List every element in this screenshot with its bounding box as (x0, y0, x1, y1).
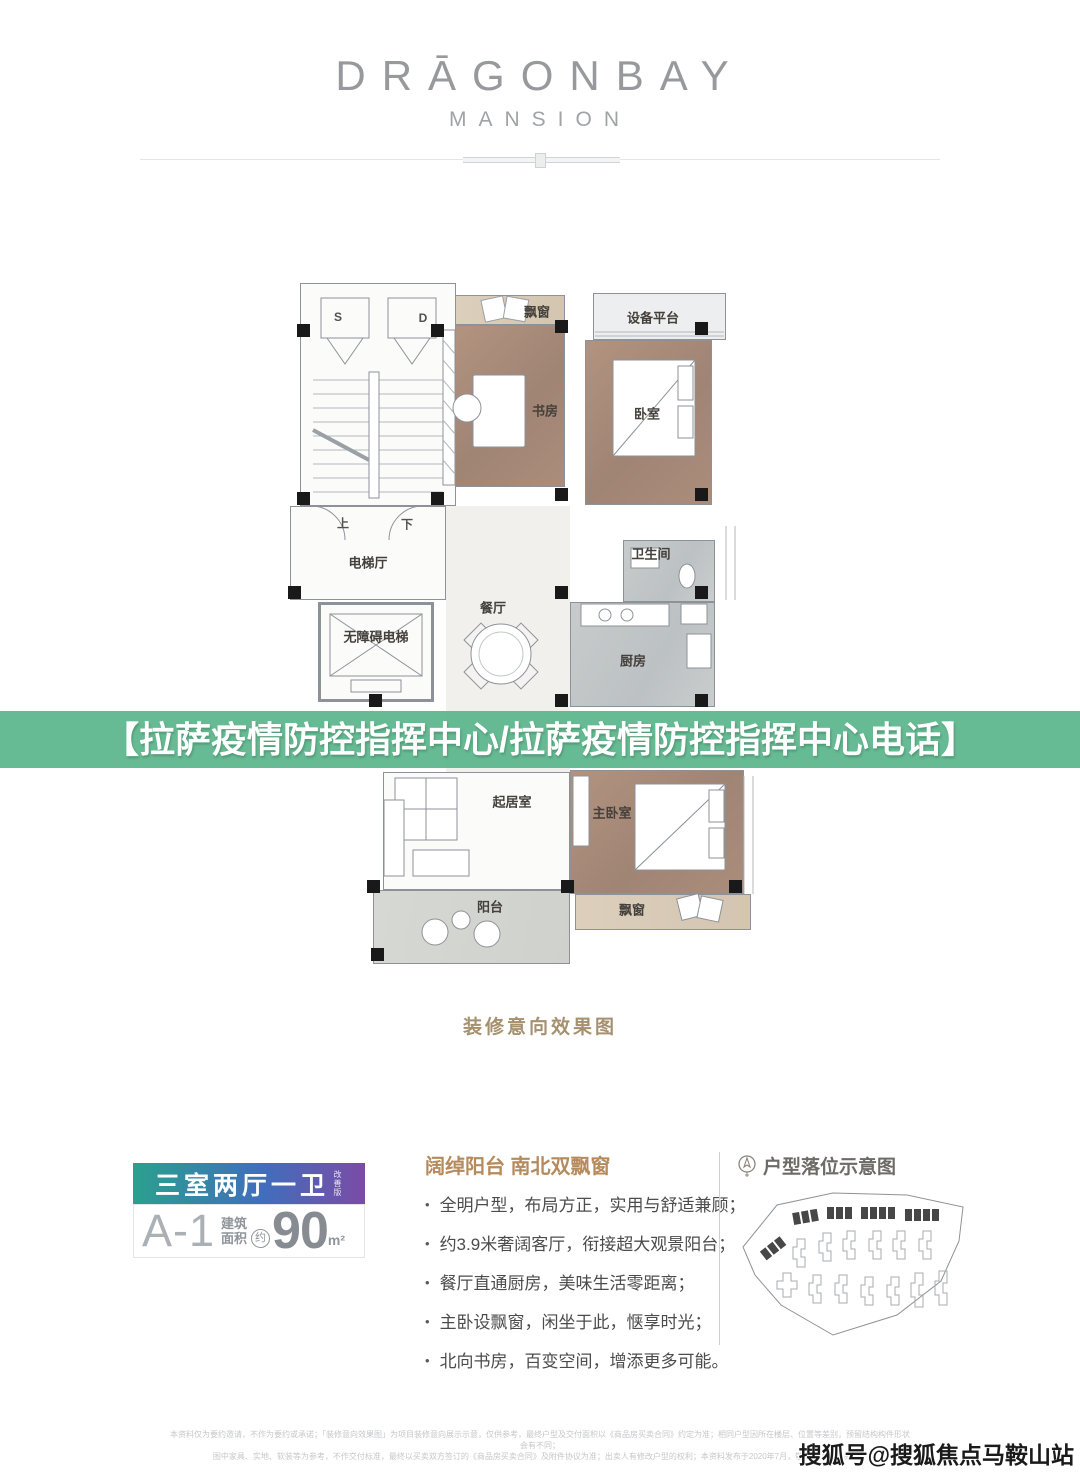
label-master-bedroom: 主卧室 (592, 803, 631, 822)
label-kitchen: 厨房 (620, 651, 646, 670)
brand-logo-primary: DRĀGONBAY (0, 52, 1080, 100)
features-list: 全明户型，布局方正，实用与舒适兼顾； 约3.9米奢阔客厅，衔接超大观景阳台； 餐… (425, 1186, 720, 1381)
column (288, 586, 301, 599)
feature-item: 北向书房，百变空间，增添更多可能。 (425, 1342, 720, 1381)
area-label: 建筑 面积 (221, 1216, 247, 1246)
floor-plan: S D 飘窗 设备平台 书房 卧室 上 下 电梯厅 无障碍电梯 餐厅 卫生间 厨… (283, 280, 775, 986)
column (297, 492, 310, 505)
column (297, 324, 310, 337)
area-unit: m² (328, 1232, 345, 1248)
column (555, 488, 568, 501)
watermark: 搜狐号@搜狐焦点马鞍山站 (799, 1436, 1074, 1470)
area-label-line2: 面积 (221, 1231, 247, 1246)
label-shaft-s: S (334, 310, 342, 324)
column (561, 880, 574, 893)
feature-item: 餐厅直通厨房，美味生活零距离； (425, 1264, 720, 1303)
header-divider-ornament (535, 153, 546, 168)
label-bedroom: 卧室 (634, 404, 660, 423)
column (369, 694, 382, 707)
unit-type-tag: 改善版 (332, 1170, 343, 1197)
label-bay-window-top: 飘窗 (524, 302, 550, 321)
feature-item: 全明户型，布局方正，实用与舒适兼顾； (425, 1186, 720, 1225)
label-study: 书房 (532, 401, 558, 420)
label-balcony: 阳台 (477, 897, 503, 916)
location-map-title-row: 户型落位示意图 (737, 1152, 896, 1179)
column (695, 586, 708, 599)
label-equipment-platform: 设备平台 (627, 308, 679, 327)
label-shaft-d: D (419, 311, 428, 325)
location-map-title: 户型落位示意图 (763, 1152, 896, 1179)
column (431, 492, 444, 505)
approx-circle: 约 (251, 1229, 270, 1248)
label-bathroom: 卫生间 (631, 544, 670, 563)
column (431, 324, 444, 337)
unit-area-panel: A-1 建筑 面积 约 90 m² (133, 1204, 365, 1258)
column (555, 586, 568, 599)
floor-plan-caption: 装修意向效果图 (0, 1012, 1080, 1039)
label-accessible-elevator: 无障碍电梯 (343, 627, 408, 646)
column (367, 880, 380, 893)
features-title: 阔绰阳台 南北双飘窗 (425, 1150, 611, 1179)
column (371, 948, 384, 961)
feature-item: 约3.9米奢阔客厅，衔接超大观景阳台； (425, 1225, 720, 1264)
area-value: 90 (272, 1201, 328, 1261)
column (729, 880, 742, 893)
column (695, 322, 708, 335)
overlay-banner-text: 【拉萨疫情防控指挥中心/拉萨疫情防控指挥中心电话】 (103, 711, 977, 768)
section-divider (719, 1152, 720, 1345)
unit-type-label: 三室两厅一卫 (155, 1166, 329, 1202)
area-label-line1: 建筑 (221, 1216, 247, 1231)
label-stairs-down: 下 (401, 516, 413, 533)
feature-item: 主卧设飘窗，闲坐于此，惬享时光； (425, 1303, 720, 1342)
overlay-banner: 【拉萨疫情防控指挥中心/拉萨疫情防控指挥中心电话】 (0, 711, 1080, 768)
unit-code: A-1 (142, 1205, 215, 1257)
column (555, 320, 568, 333)
label-bay-window-bottom: 飘窗 (619, 900, 645, 919)
label-dining: 餐厅 (480, 598, 506, 617)
brand-logo-secondary: MANSION (0, 108, 1080, 132)
label-elevator-hall: 电梯厅 (348, 553, 387, 572)
label-living: 起居室 (492, 792, 531, 811)
unit-type-bar: 三室两厅一卫 改善版 (133, 1163, 365, 1204)
column (695, 694, 708, 707)
compass-icon (737, 1154, 757, 1178)
column (695, 488, 708, 501)
label-stairs-up: 上 (337, 515, 349, 532)
site-plan-drawing (735, 1183, 973, 1355)
site-plan-map (735, 1183, 973, 1355)
column (555, 694, 568, 707)
